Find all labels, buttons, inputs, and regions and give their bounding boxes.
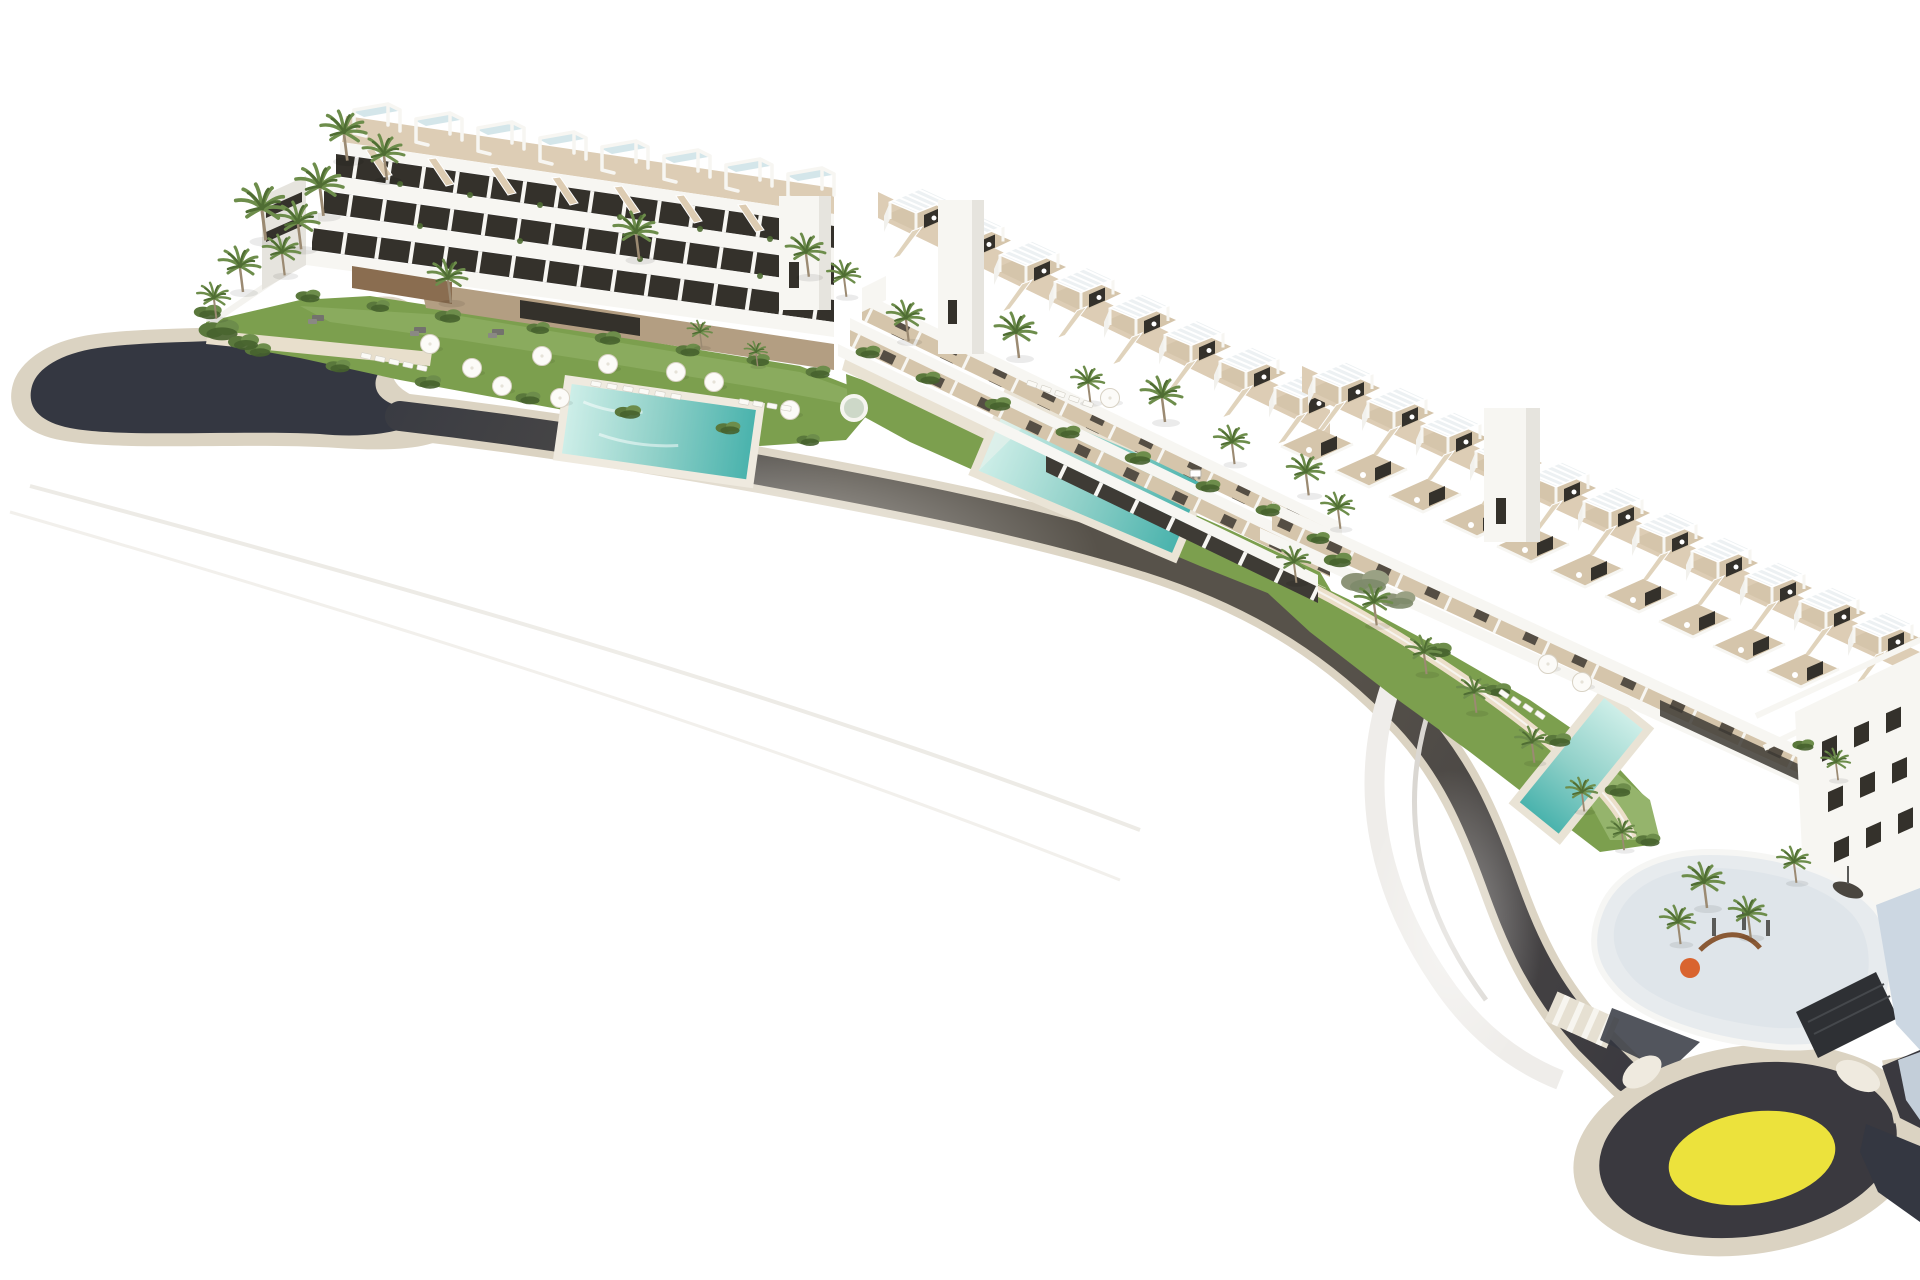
play-pole [1766,920,1770,936]
render-canvas [0,0,1920,1280]
core-door [789,262,799,288]
core-door [948,300,957,324]
stair-core-b [938,200,984,354]
stair-core-c [1484,408,1540,542]
play-surface-orange [1680,958,1700,978]
play-pole [1712,918,1716,936]
sun-glare-wash [1362,770,1542,1090]
round-lounge-circle [842,396,866,420]
aerial-render [0,0,1920,1280]
core-door [1496,498,1506,524]
core-shade [1526,408,1540,542]
core-shade [972,200,984,354]
